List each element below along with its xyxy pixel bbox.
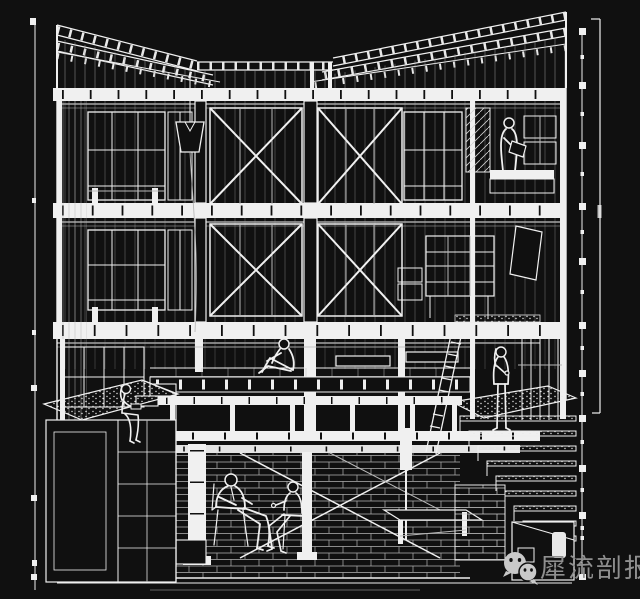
- footing: [297, 552, 317, 560]
- left-tick-rod: [30, 18, 37, 590]
- section-perspective-drawing: 犀流剖报: [0, 0, 640, 599]
- planter-box: [46, 420, 176, 582]
- watermark: 犀流剖报: [503, 552, 640, 585]
- right-tick-rod: [579, 28, 586, 580]
- left-planter: [44, 380, 178, 582]
- drawing-canvas: 犀流剖报: [0, 0, 640, 599]
- watermark-text: 犀流剖报: [540, 554, 640, 584]
- butterfly-roof: [57, 12, 566, 89]
- louver-screen: [466, 108, 490, 172]
- basement-column: [188, 444, 206, 556]
- mat: [336, 356, 390, 366]
- mat: [406, 352, 458, 362]
- right-scale-bar: [591, 19, 602, 413]
- understair-masonry: [455, 485, 505, 560]
- basement-column: [302, 452, 312, 552]
- tilted-hatch-panel: [510, 226, 542, 280]
- wechat-icon-small: [519, 563, 538, 585]
- crate: [176, 540, 206, 564]
- basement-post: [400, 428, 412, 470]
- mezzanine-platform: [490, 170, 554, 179]
